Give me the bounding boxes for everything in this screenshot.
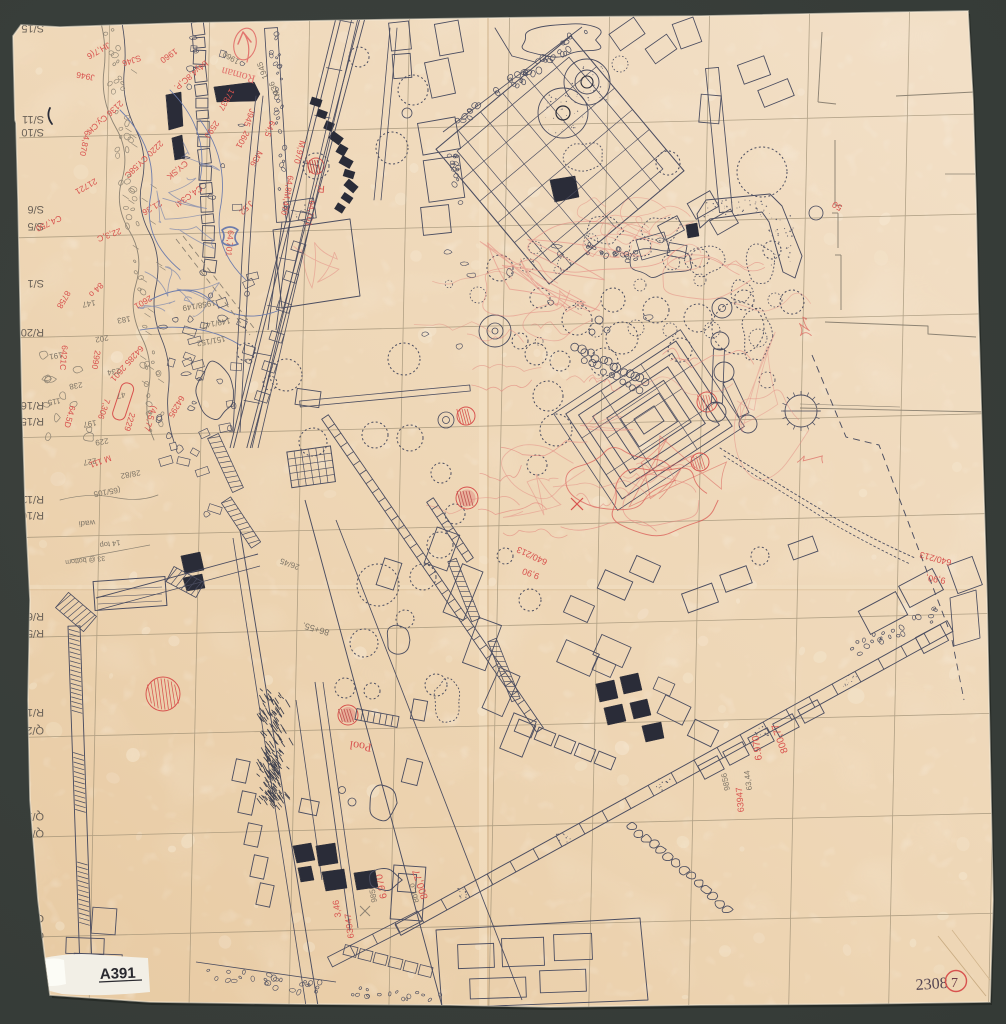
svg-text:R/16: R/16: [21, 399, 44, 411]
svg-text:R/15: R/15: [21, 415, 44, 427]
svg-text:S/10: S/10: [21, 126, 44, 138]
svg-text:R/20: R/20: [21, 326, 44, 338]
svg-text:2308: 2308: [915, 975, 948, 994]
svg-text:S/11: S/11: [22, 113, 44, 125]
svg-text:wadi: wadi: [78, 518, 96, 529]
svg-text:R/1: R/1: [27, 706, 44, 718]
svg-text:S/6: S/6: [27, 203, 44, 215]
svg-text:S/1: S/1: [27, 277, 44, 289]
svg-text:7: 7: [951, 976, 958, 991]
svg-text:R/5: R/5: [27, 627, 44, 639]
